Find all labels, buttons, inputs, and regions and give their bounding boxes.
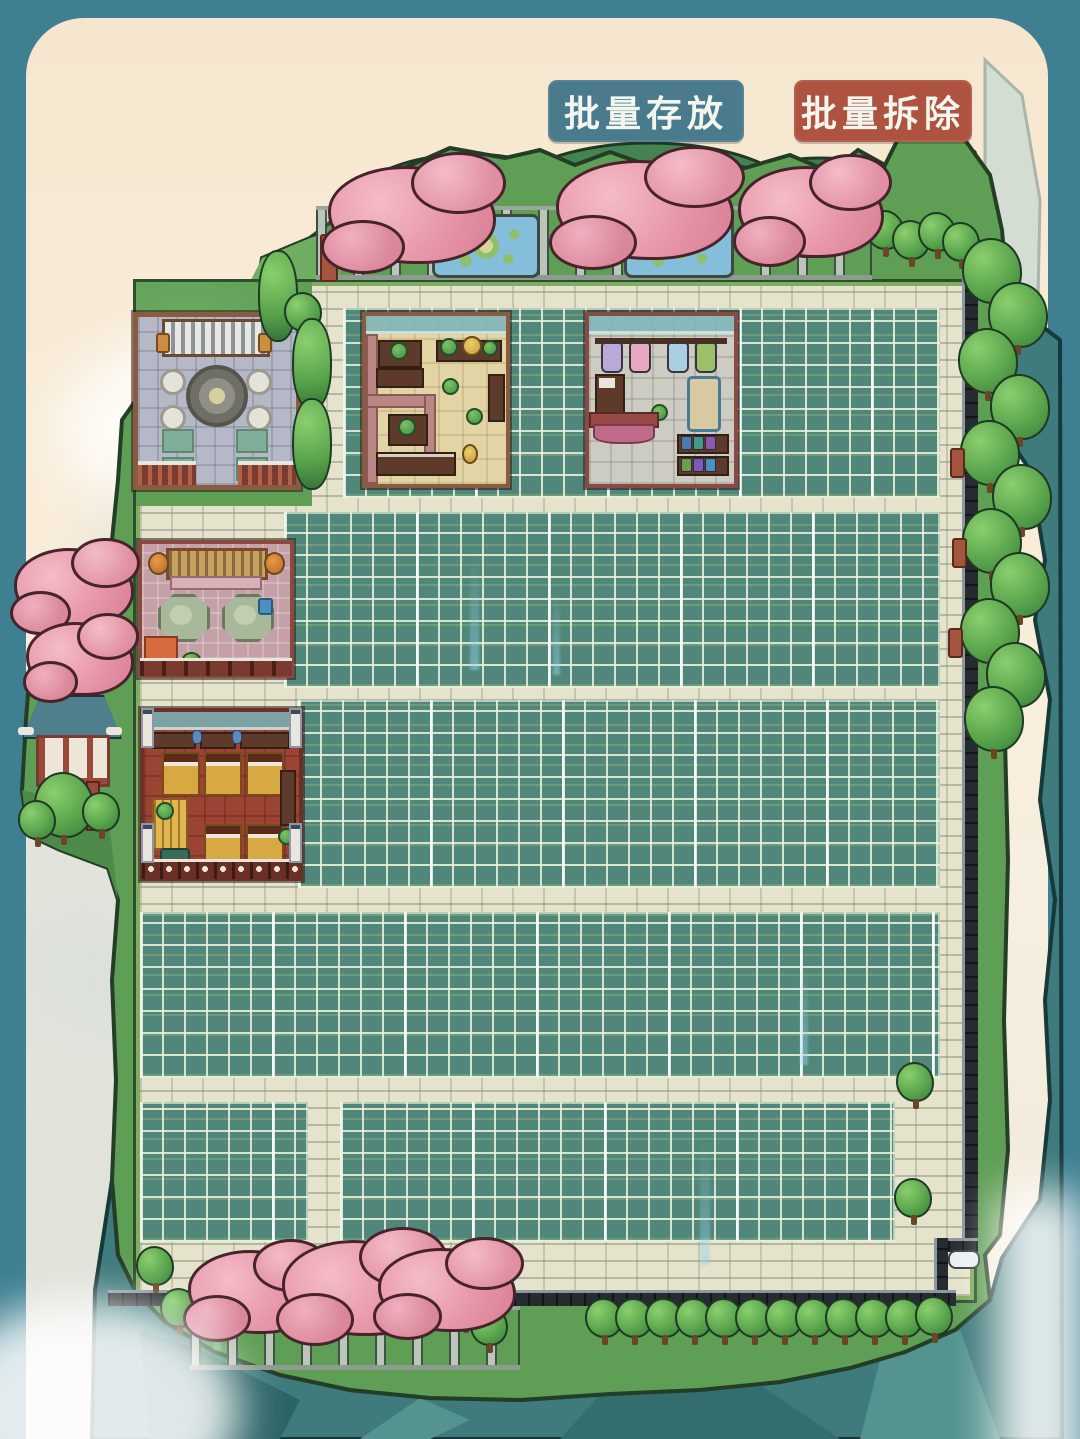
stone-hall-plaque bbox=[162, 319, 270, 357]
red-lantern bbox=[950, 448, 965, 478]
build-grid-row5-left[interactable] bbox=[140, 1102, 308, 1242]
fabric-bolt bbox=[705, 458, 716, 472]
cherry-tree bbox=[378, 1248, 516, 1332]
fabric-bolt bbox=[705, 436, 716, 450]
cherry-tree bbox=[738, 166, 884, 258]
potted-plant bbox=[442, 378, 459, 395]
counter bbox=[376, 452, 456, 476]
building-tailor-room[interactable] bbox=[585, 312, 738, 488]
build-grid-row5-right[interactable] bbox=[340, 1102, 895, 1242]
mirror bbox=[687, 376, 721, 432]
fabric-box bbox=[599, 378, 615, 388]
pillar bbox=[289, 823, 302, 863]
build-grid-row3[interactable] bbox=[298, 700, 940, 888]
cabinet bbox=[200, 732, 236, 749]
shelf bbox=[488, 374, 505, 422]
potted-plant bbox=[466, 408, 483, 425]
cherry-tree bbox=[556, 160, 734, 260]
railing bbox=[142, 859, 301, 879]
stone-circle bbox=[160, 405, 186, 431]
eave-cap bbox=[106, 727, 122, 735]
vase bbox=[232, 730, 242, 744]
tree bbox=[82, 792, 120, 832]
dark-wall-corner bbox=[934, 1238, 948, 1292]
glass-header bbox=[144, 712, 299, 730]
pillar bbox=[141, 708, 154, 748]
water-streak bbox=[470, 555, 479, 670]
mat bbox=[170, 576, 262, 590]
bed bbox=[246, 824, 284, 864]
flowers bbox=[462, 336, 482, 356]
building-tea-room[interactable] bbox=[138, 540, 294, 678]
plant bbox=[440, 338, 458, 356]
orange-plant bbox=[264, 552, 285, 575]
plant bbox=[482, 340, 498, 356]
bed bbox=[162, 752, 200, 796]
bonsai bbox=[390, 342, 408, 360]
curtain bbox=[593, 424, 655, 444]
waterfall-mist bbox=[995, 1190, 1080, 1439]
bed bbox=[246, 752, 284, 796]
shelf bbox=[376, 368, 424, 388]
glass-header bbox=[589, 316, 734, 334]
kettle bbox=[258, 598, 273, 615]
pillar bbox=[289, 708, 302, 748]
bed bbox=[204, 824, 242, 864]
plant bbox=[156, 802, 174, 820]
cabinet bbox=[240, 732, 290, 749]
tree bbox=[18, 800, 56, 840]
cypress-tree bbox=[292, 318, 332, 410]
fabric-bolt bbox=[681, 458, 692, 472]
building-inn-room[interactable] bbox=[140, 708, 303, 881]
hanging-robe bbox=[629, 342, 651, 373]
red-lantern bbox=[948, 628, 963, 658]
building-study-room[interactable] bbox=[362, 312, 510, 488]
red-lantern bbox=[952, 538, 967, 568]
orange-plant bbox=[148, 552, 169, 575]
tree bbox=[136, 1246, 174, 1286]
build-grid-row4[interactable] bbox=[140, 912, 940, 1078]
stone-hall-fence bbox=[238, 461, 296, 485]
tree bbox=[964, 686, 1024, 752]
fabric-bolt bbox=[693, 458, 704, 472]
eave-cap bbox=[18, 727, 34, 735]
water-streak bbox=[800, 965, 808, 1065]
green-mat bbox=[162, 429, 194, 453]
water-streak bbox=[553, 590, 560, 675]
glass-header bbox=[366, 316, 506, 334]
tree bbox=[915, 1296, 953, 1336]
game-viewport: 批量存放 批量拆除 bbox=[0, 0, 1080, 1439]
lamp bbox=[462, 444, 478, 464]
cherry-tree bbox=[328, 166, 496, 264]
vase bbox=[192, 730, 202, 744]
batch-demolish-button[interactable]: 批量拆除 bbox=[794, 80, 972, 142]
pier-gate bbox=[948, 1250, 980, 1269]
batch-store-button[interactable]: 批量存放 bbox=[548, 80, 744, 142]
octagonal-table bbox=[158, 594, 210, 642]
railing bbox=[140, 658, 292, 676]
stone-hall-fence bbox=[138, 461, 196, 485]
fabric-bolt bbox=[693, 436, 704, 450]
fabric-bolt bbox=[681, 436, 692, 450]
cypress-tree bbox=[292, 398, 332, 490]
bed bbox=[204, 752, 242, 796]
pillar bbox=[141, 823, 154, 863]
cabinet bbox=[152, 732, 196, 749]
shelf bbox=[280, 770, 296, 826]
cherry-tree bbox=[26, 622, 134, 696]
green-mat bbox=[236, 429, 268, 453]
hanging-robe bbox=[601, 342, 623, 373]
stone-circle bbox=[246, 405, 272, 431]
bonsai bbox=[398, 418, 416, 436]
hanging-robe bbox=[695, 342, 717, 373]
lantern-icon bbox=[156, 333, 170, 353]
stone-circle bbox=[246, 369, 272, 395]
dark-wall-right bbox=[962, 252, 978, 1244]
stone-circle bbox=[160, 369, 186, 395]
tree bbox=[896, 1062, 934, 1102]
build-grid-row2[interactable] bbox=[284, 512, 940, 688]
hanging-robe bbox=[667, 342, 689, 373]
water-streak bbox=[700, 1140, 710, 1265]
tree bbox=[894, 1178, 932, 1218]
stone-hall-medallion bbox=[186, 365, 248, 427]
